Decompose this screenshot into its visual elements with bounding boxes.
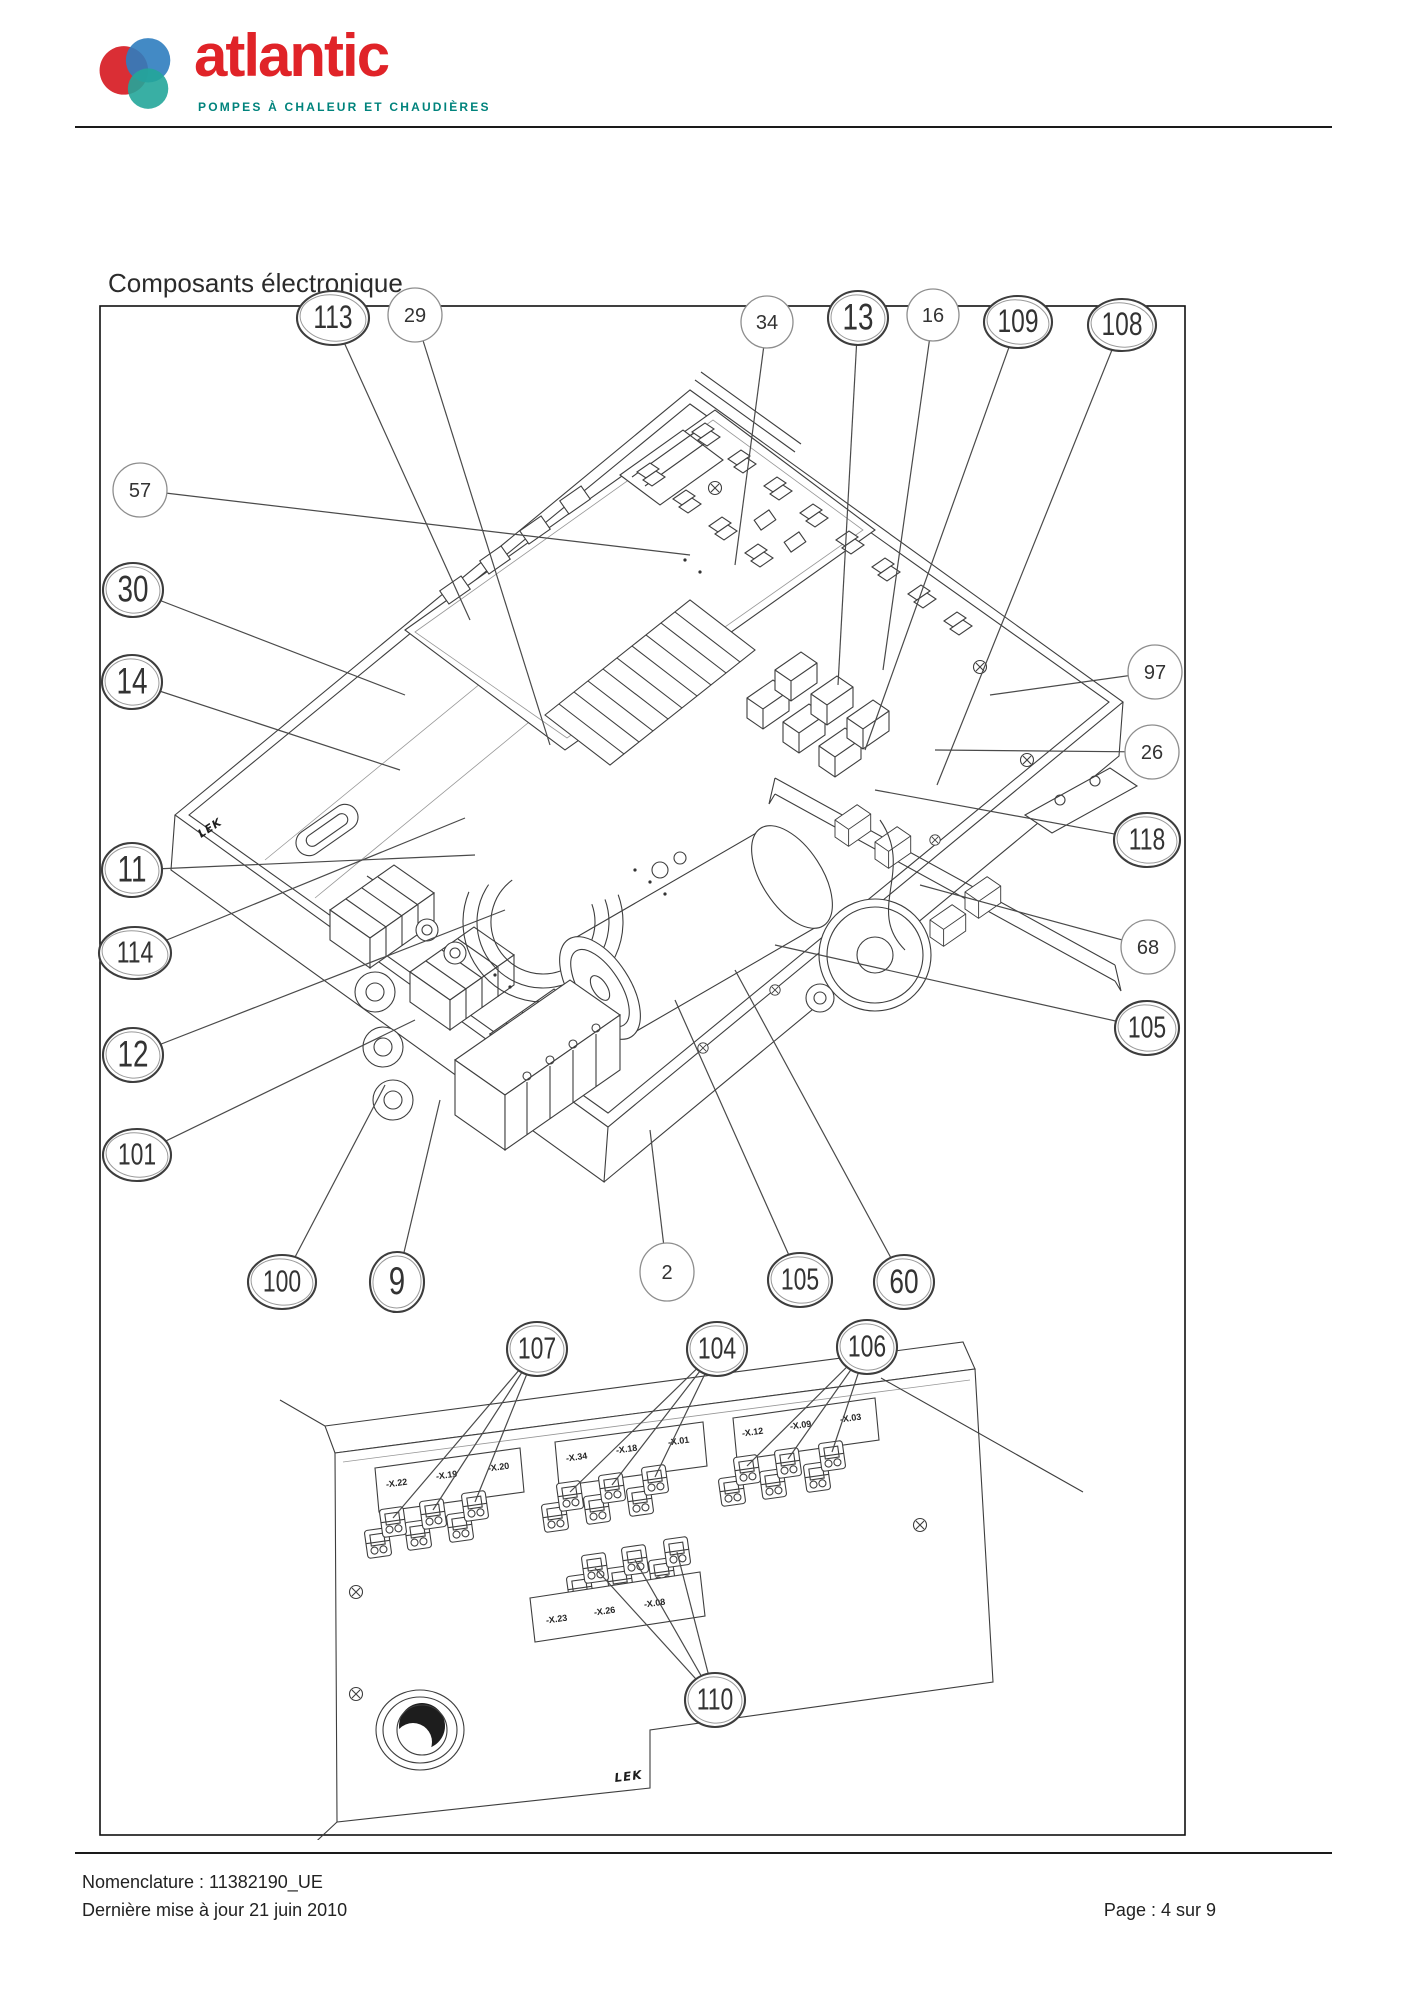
callout-105: 105 <box>1115 1001 1179 1055</box>
callout-number: 26 <box>1141 742 1163 764</box>
callout-number: 13 <box>842 296 873 338</box>
callout-29: 29 <box>388 288 442 342</box>
callout-114: 114 <box>99 927 171 979</box>
brand-name: atlantic <box>194 26 388 86</box>
callout-number: 68 <box>1137 937 1159 959</box>
callout-number: 105 <box>781 1262 819 1296</box>
footer-divider <box>75 1852 1332 1854</box>
callout-number: 9 <box>389 1260 405 1303</box>
header-divider <box>75 126 1332 128</box>
callout-number: 97 <box>1144 662 1166 684</box>
callout-101: 101 <box>103 1129 171 1181</box>
lower-panel-drawing: -X.22 -X.19 -X.20 -X.34 -X.18 -X.01 -X.1… <box>280 1342 1083 1840</box>
callout-13: 13 <box>828 291 888 345</box>
callout-number: 30 <box>117 568 148 610</box>
callout-number: 106 <box>848 1329 886 1363</box>
callout-number: 2 <box>661 1262 672 1284</box>
callout-105: 105 <box>768 1253 832 1307</box>
brand-tagline: POMPES À CHALEUR ET CHAUDIÈRES <box>198 100 491 114</box>
callout-9: 9 <box>370 1252 424 1312</box>
callout-number: 60 <box>889 1261 918 1300</box>
callout-number: 11 <box>118 848 147 890</box>
callout-30: 30 <box>103 563 163 617</box>
footer-page-number: Page : 4 sur 9 <box>966 1900 1216 1921</box>
callout-number: 16 <box>922 305 944 327</box>
callout-number: 12 <box>117 1033 148 1075</box>
callout-26: 26 <box>1125 725 1179 779</box>
callout-34: 34 <box>741 296 793 348</box>
callout-number: 101 <box>118 1137 156 1171</box>
callout-2: 2 <box>640 1243 694 1301</box>
upper-enclosure-drawing: LEK <box>171 372 1137 1182</box>
callout-number: 34 <box>756 312 778 334</box>
document-page: atlantic POMPES À CHALEUR ET CHAUDIÈRES … <box>0 0 1410 1994</box>
callout-number: 110 <box>697 1682 734 1716</box>
callout-number: 57 <box>129 480 151 502</box>
callout-104: 104 <box>687 1322 747 1376</box>
callout-113: 113 <box>297 291 369 345</box>
lek-marking-upper: LEK <box>196 815 225 840</box>
callout-number: 107 <box>518 1331 556 1365</box>
callout-12: 12 <box>103 1028 163 1082</box>
callout-number: 118 <box>1129 822 1166 856</box>
callout-number: 105 <box>1128 1010 1166 1044</box>
callout-11: 11 <box>102 843 162 897</box>
callout-number: 29 <box>404 305 426 327</box>
callout-number: 104 <box>698 1331 736 1365</box>
callout-number: 109 <box>997 304 1038 340</box>
callout-109: 109 <box>984 296 1052 348</box>
callout-number: 114 <box>117 935 154 969</box>
callout-14: 14 <box>102 655 162 709</box>
callout-number: 113 <box>313 300 352 336</box>
callout-60: 60 <box>874 1255 934 1309</box>
callout-57: 57 <box>113 463 167 517</box>
callout-number: 14 <box>116 660 147 702</box>
callout-106: 106 <box>837 1320 897 1374</box>
callout-100: 100 <box>248 1255 316 1309</box>
callout-118: 118 <box>1114 813 1180 867</box>
callout-68: 68 <box>1121 920 1175 974</box>
callout-16: 16 <box>907 289 959 341</box>
footer-nomenclature: Nomenclature : 11382190_UE <box>82 1872 323 1893</box>
callout-97: 97 <box>1128 645 1182 699</box>
callout-number: 108 <box>1101 307 1142 343</box>
footer-updated: Dernière mise à jour 21 juin 2010 <box>82 1900 347 1921</box>
atlantic-logo-icon <box>95 30 187 126</box>
callout-110: 110 <box>685 1673 745 1727</box>
callout-107: 107 <box>507 1322 567 1376</box>
parts-diagram: LEK <box>75 230 1200 1840</box>
callout-108: 108 <box>1088 299 1156 351</box>
callout-number: 100 <box>263 1264 301 1298</box>
